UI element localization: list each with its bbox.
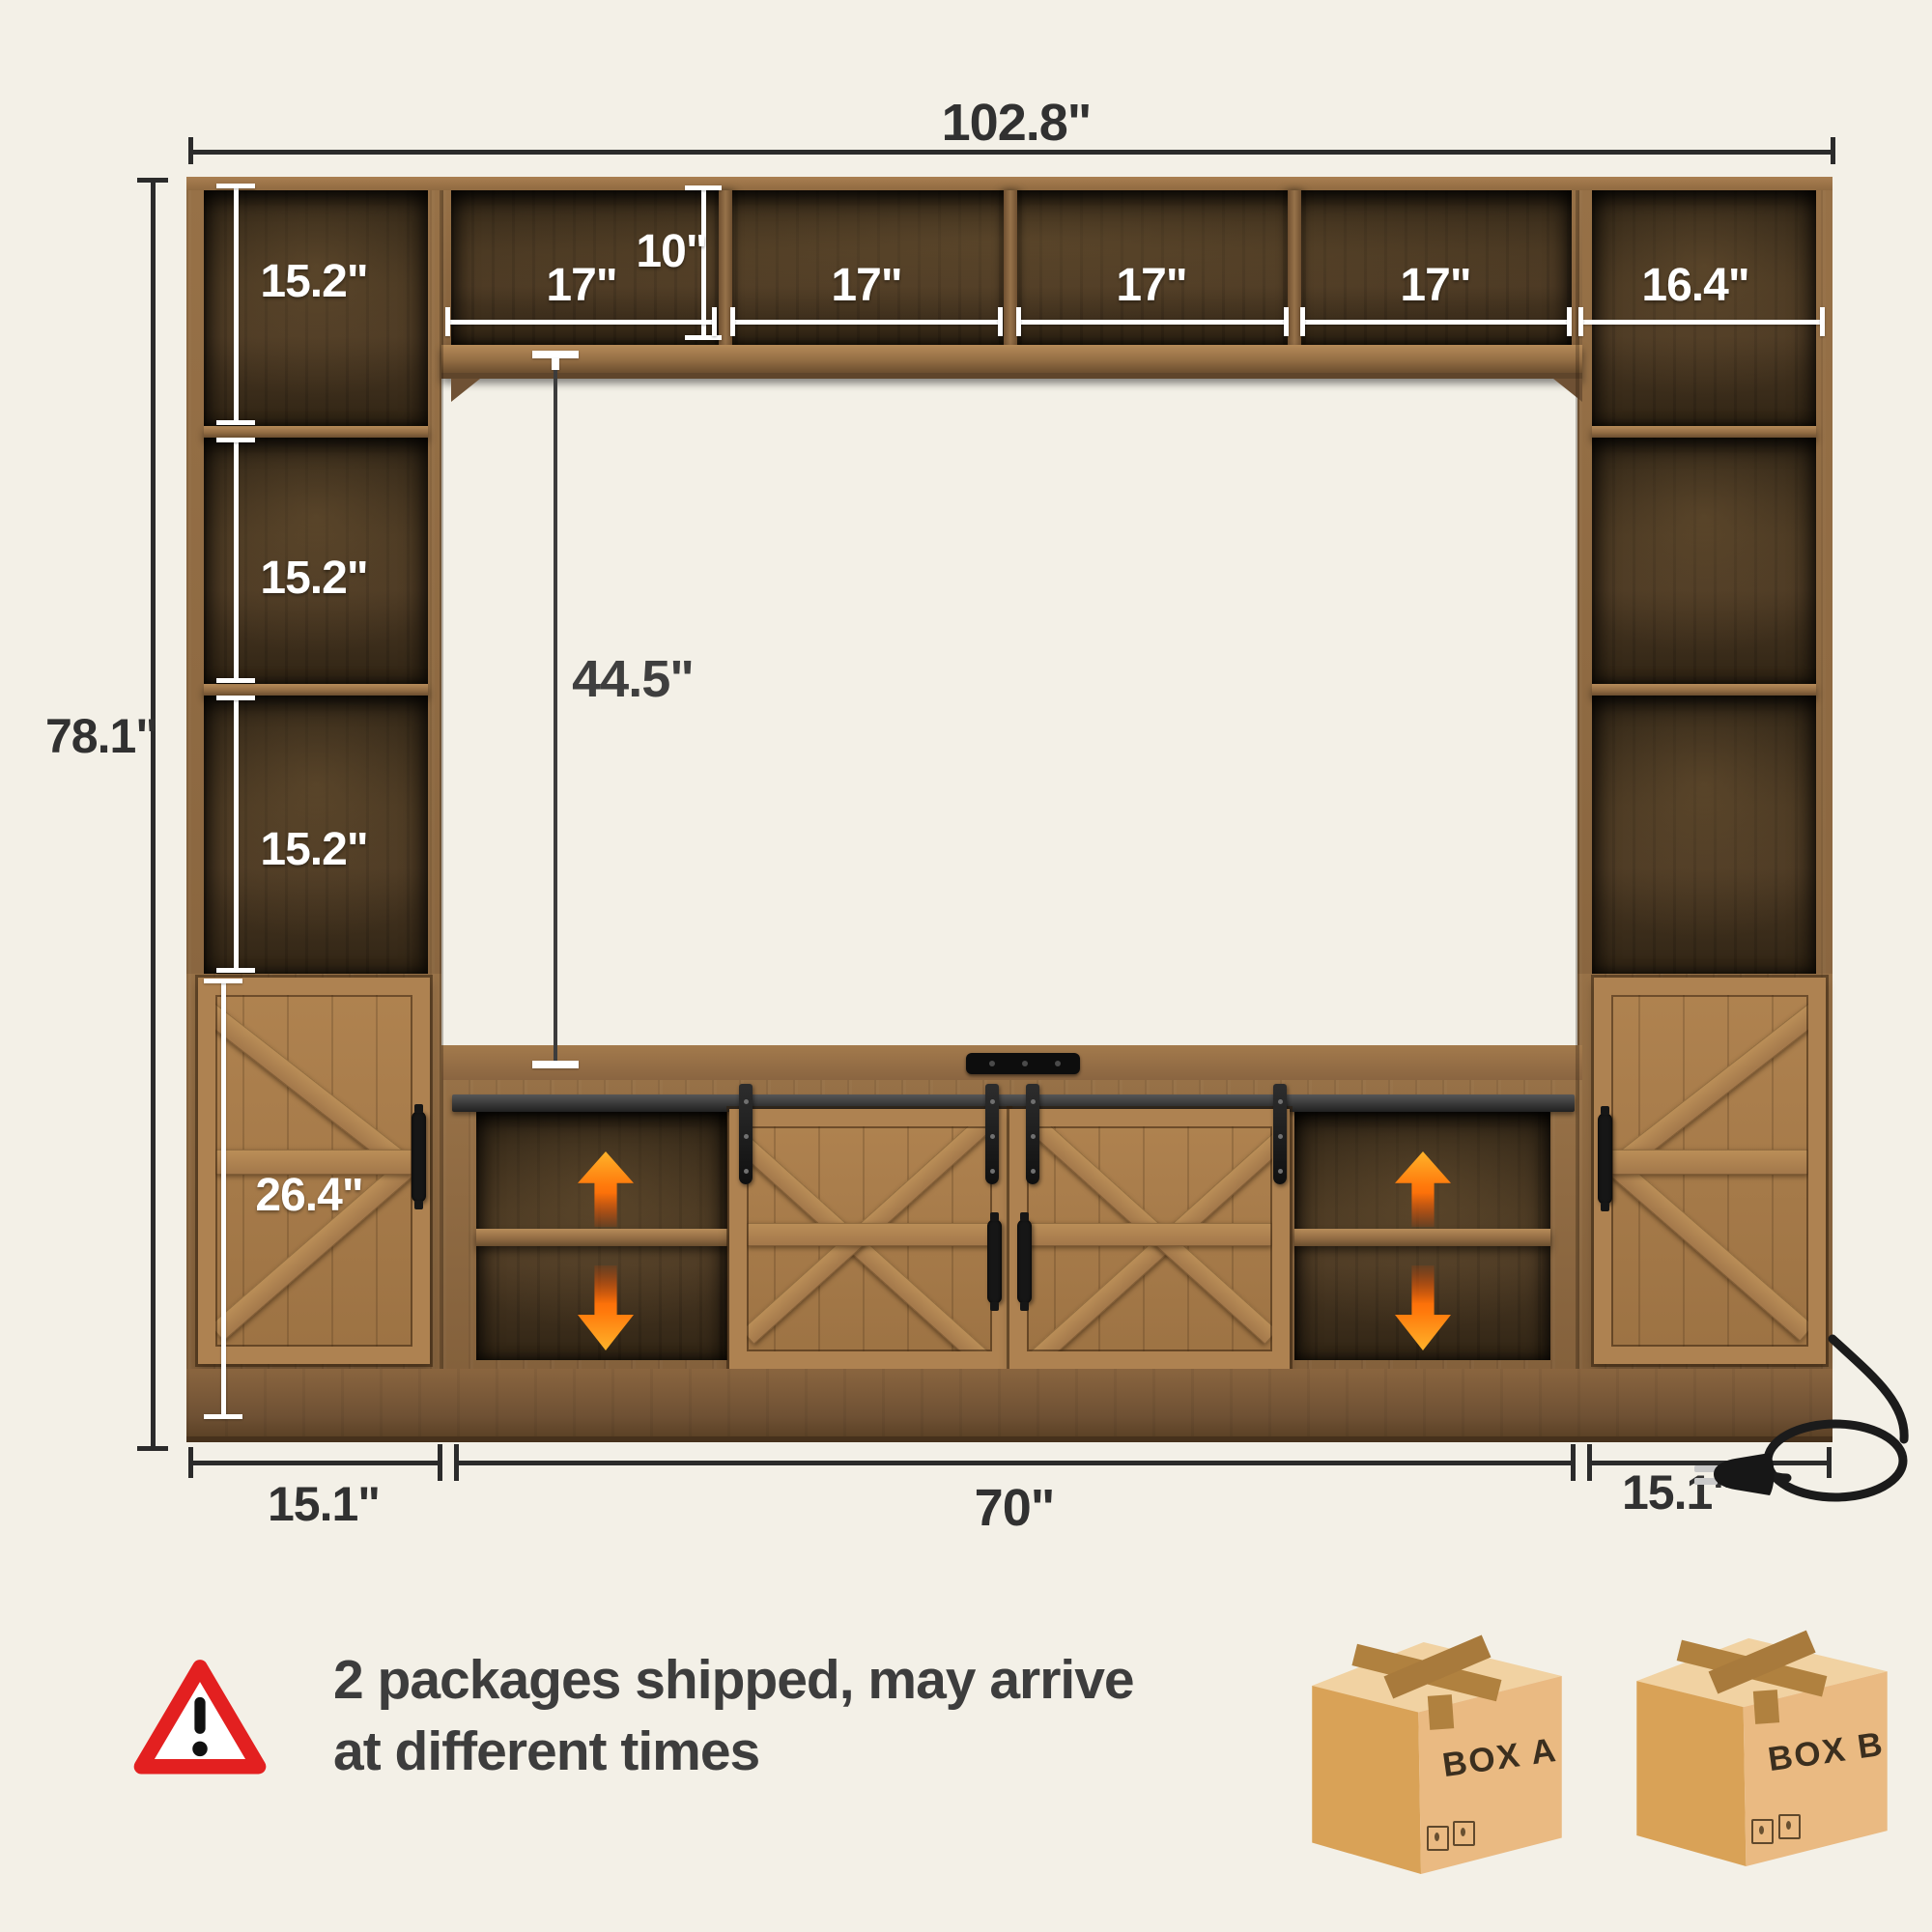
- dim-line-tv-opening: [554, 370, 557, 1065]
- dim-line-hutch-1: [447, 320, 716, 325]
- left-tower-shelf-1: [204, 426, 428, 438]
- dim-label-cabinet-height: 26.4": [232, 1169, 386, 1222]
- left-cabinet-door-handle: [412, 1111, 426, 1203]
- dim-label-hutch-4: 17": [1358, 259, 1513, 312]
- box-tape-tail: [1753, 1690, 1779, 1724]
- dim-tick: [1831, 137, 1835, 164]
- power-cord: [1681, 1314, 1932, 1536]
- warning-icon: [131, 1658, 269, 1777]
- package-icon: [1427, 1826, 1449, 1851]
- package-icon: [1453, 1821, 1475, 1846]
- package-icon: [1778, 1814, 1801, 1839]
- dim-label-bottom-left: 15.1": [227, 1476, 420, 1532]
- dim-cap: [685, 185, 722, 190]
- dim-cap: [216, 678, 255, 683]
- dim-tick: [1578, 307, 1583, 336]
- console-shelf-right: [1294, 1229, 1550, 1246]
- dim-tick: [1567, 307, 1572, 336]
- bridge-divider-2: [1004, 190, 1017, 345]
- dim-label-bottom-center: 70": [918, 1478, 1111, 1538]
- dim-label-hutch-2: 17": [789, 259, 944, 312]
- dim-tick: [137, 178, 168, 183]
- shipping-box-b: BOX B: [1629, 1629, 1895, 1866]
- dim-line-bottom-center: [456, 1461, 1573, 1465]
- power-outlet-strip: [966, 1053, 1080, 1074]
- sliding-barn-door-right: [1009, 1109, 1290, 1369]
- package-icon: [1751, 1819, 1774, 1844]
- dim-cap: [216, 438, 255, 442]
- dim-line-bottom-left: [190, 1461, 440, 1465]
- dim-line-hutch-4: [1302, 320, 1569, 325]
- plug-prong: [1694, 1478, 1718, 1485]
- sliding-barn-door-left: [729, 1109, 1009, 1369]
- bridge-shelf-board: [441, 345, 1582, 379]
- right-cabinet-door-handle: [1598, 1113, 1612, 1205]
- base-plinth: [186, 1369, 1833, 1442]
- dim-tick: [1284, 307, 1289, 336]
- dim-cap: [216, 420, 255, 425]
- dim-label-hutch-1: 17": [504, 259, 659, 312]
- notice-text-line1: 2 packages shipped, may arrive: [333, 1648, 1134, 1712]
- dim-line-cabinet-height: [221, 980, 226, 1418]
- dim-line-hutch-3: [1018, 320, 1286, 325]
- dim-line-overall-height: [151, 180, 156, 1451]
- plug-prong: [1694, 1465, 1718, 1472]
- dim-tick: [137, 1446, 168, 1451]
- product-dimension-diagram: 102.8" 78.1" 15.2" 15.2" 15.2" 10" 17" 1…: [0, 0, 1932, 1932]
- dim-tick: [438, 1444, 442, 1481]
- door-hanger-strap: [1026, 1084, 1039, 1184]
- left-tower-shelf-2: [204, 684, 428, 696]
- right-cabinet-barn-door: [1594, 978, 1826, 1364]
- seam-left: [440, 190, 443, 1369]
- dim-label-overall-width: 102.8": [871, 93, 1161, 153]
- dim-tick: [712, 307, 717, 336]
- shipping-box-a: BOX A: [1304, 1633, 1570, 1874]
- box-tape-tail: [1428, 1694, 1454, 1730]
- dim-label-right-cubby: 16.4": [1613, 259, 1777, 312]
- dim-cap: [216, 184, 255, 188]
- right-tower-shelf-2: [1592, 684, 1816, 696]
- dim-stem: [552, 358, 559, 370]
- dim-cap: [532, 351, 579, 358]
- dim-tick: [1820, 307, 1825, 336]
- notice-text-line2: at different times: [333, 1719, 759, 1783]
- dim-tick: [188, 137, 193, 164]
- dim-label-cubby-2: 15.2": [241, 552, 386, 605]
- right-tower-cubby-2: [1592, 438, 1816, 684]
- door-hanger-strap: [985, 1084, 999, 1184]
- dim-cap: [204, 1414, 242, 1419]
- dim-label-overall-height: 78.1": [34, 708, 169, 764]
- dim-cap: [216, 968, 255, 973]
- bridge-divider-3: [1288, 190, 1301, 345]
- sliding-door-handle-right: [1017, 1219, 1032, 1304]
- dim-tick: [1300, 307, 1305, 336]
- dim-label-tv-opening: 44.5": [526, 649, 739, 709]
- door-hanger-strap: [739, 1084, 753, 1184]
- dim-label-hutch-3: 17": [1074, 259, 1229, 312]
- dim-line-hutch-2: [732, 320, 1002, 325]
- plug-icon: [1714, 1453, 1775, 1495]
- right-tower-cubby-3: [1592, 696, 1816, 974]
- dim-cap: [204, 979, 242, 983]
- door-frame: [1594, 978, 1826, 1364]
- dim-line-cubby-1: [234, 185, 239, 423]
- dim-tick: [445, 307, 450, 336]
- seam-right: [1576, 190, 1579, 1369]
- dim-label-cubby-1: 15.2": [241, 255, 386, 308]
- door-frame: [729, 1109, 1009, 1369]
- door-frame: [1009, 1109, 1290, 1369]
- dim-tick: [454, 1444, 459, 1481]
- dim-line-cubby-2: [234, 440, 239, 681]
- dim-tick: [998, 307, 1003, 336]
- dim-line-cubby-3: [234, 698, 239, 971]
- dim-line-right-cubby: [1580, 320, 1824, 325]
- dim-tick: [1016, 307, 1021, 336]
- bridge-corbel-left: [451, 379, 480, 402]
- right-tower-shelf-1: [1592, 426, 1816, 438]
- dim-tick: [188, 1447, 193, 1478]
- dim-cap: [216, 696, 255, 700]
- sliding-door-handle-left: [987, 1219, 1002, 1304]
- dim-tick: [730, 307, 735, 336]
- dim-tick: [1571, 1444, 1576, 1481]
- console-shelf-left: [476, 1229, 727, 1246]
- dim-label-cubby-3: 15.2": [241, 823, 386, 876]
- dim-cap: [532, 1061, 579, 1068]
- door-hanger-strap: [1273, 1084, 1287, 1184]
